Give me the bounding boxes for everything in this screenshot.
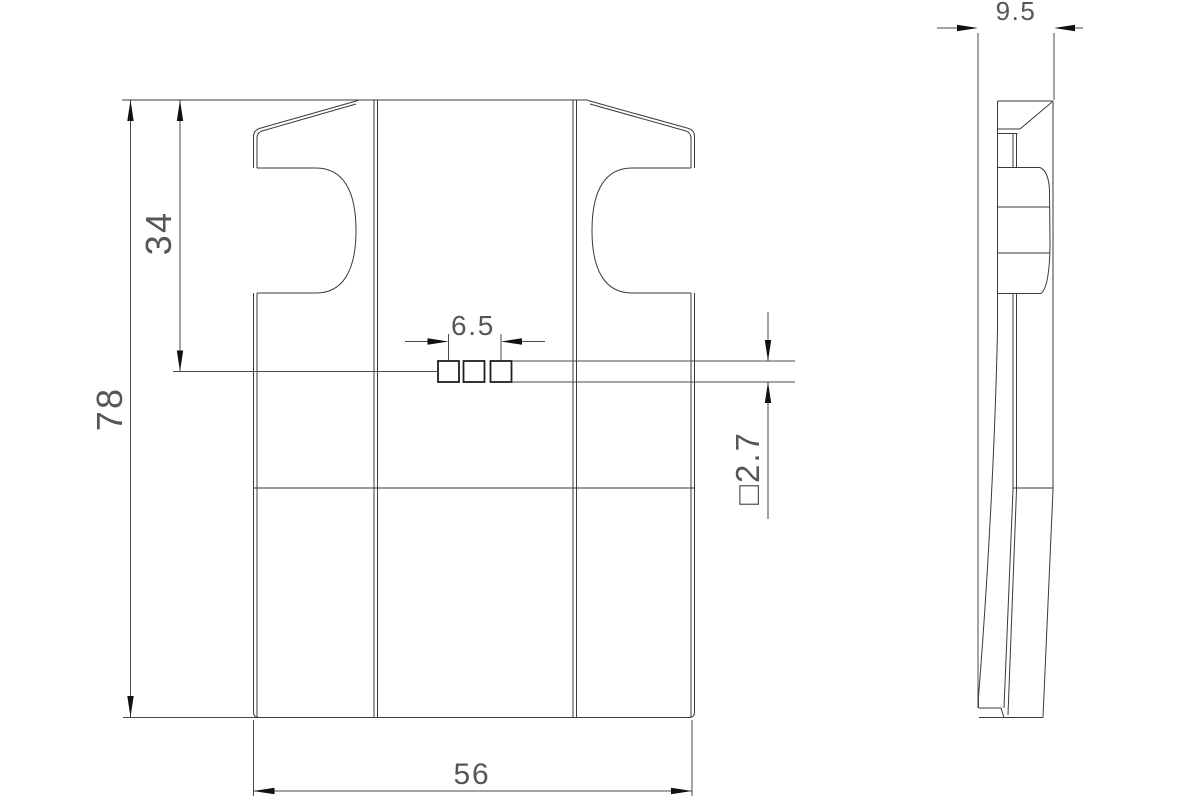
front-left-notch bbox=[257, 168, 356, 293]
dim-95-arrow-right bbox=[1054, 25, 1075, 31]
side-tab-curve bbox=[1040, 168, 1050, 294]
dim-56-arrow-right bbox=[671, 788, 692, 794]
dim-label-overall-depth: 9.5 bbox=[996, 0, 1037, 26]
side-view bbox=[979, 101, 1054, 718]
dim-34-arrow-top bbox=[177, 100, 183, 121]
side-left-edge-bowed bbox=[979, 101, 998, 708]
front-right-notch bbox=[592, 168, 691, 293]
dimension-overall-depth: 9.5 bbox=[937, 0, 1083, 708]
square-slot-2 bbox=[464, 361, 485, 382]
drawing-canvas: 78 34 56 6.5 □2.7 bbox=[0, 0, 1200, 800]
front-left-shoulder-corner-inner bbox=[257, 131, 262, 138]
dim-27-arrow-down bbox=[765, 340, 771, 361]
dim-label-slot-spacing: 6.5 bbox=[451, 310, 495, 341]
side-foot-corner bbox=[1001, 708, 1004, 718]
technical-drawing: 78 34 56 6.5 □2.7 bbox=[0, 0, 1200, 800]
dim-27-arrow-up bbox=[765, 382, 771, 403]
square-slot-1 bbox=[438, 361, 459, 382]
front-right-shoulder-corner-inner bbox=[686, 131, 691, 138]
side-fold-lower-b bbox=[1008, 490, 1017, 715]
front-view bbox=[122, 100, 795, 718]
dim-34-arrow-bottom bbox=[177, 351, 183, 372]
dim-65-arrow-left bbox=[428, 338, 449, 344]
front-left-shoulder-outer bbox=[261, 101, 358, 129]
side-fold-lower-a bbox=[1004, 490, 1013, 708]
dim-label-overall-height: 78 bbox=[89, 387, 130, 431]
dim-56-arrow-left bbox=[254, 788, 275, 794]
dim-65-arrow-right bbox=[501, 338, 522, 344]
front-right-shoulder-outer bbox=[588, 101, 687, 129]
dimension-overall-width: 56 bbox=[254, 720, 693, 796]
dimension-slot-size: □2.7 bbox=[729, 312, 771, 519]
dim-label-upper-section: 34 bbox=[138, 211, 179, 255]
front-right-edge-lower-outer bbox=[689, 293, 695, 718]
side-right-edge-taper bbox=[1043, 490, 1053, 718]
dimension-overall-height: 78 bbox=[89, 100, 256, 718]
dim-78-arrow-top bbox=[127, 100, 133, 121]
square-slot-3 bbox=[491, 361, 512, 382]
front-left-edge-lower-outer bbox=[254, 293, 260, 718]
dim-95-arrow-left bbox=[957, 25, 978, 31]
front-right-shoulder-inner bbox=[590, 104, 686, 131]
dimension-slot-spacing: 6.5 bbox=[405, 310, 545, 361]
dim-label-slot-size: □2.7 bbox=[729, 431, 766, 505]
front-left-shoulder-inner bbox=[262, 104, 356, 131]
side-top-chamfer bbox=[1020, 102, 1052, 129]
dim-78-arrow-bottom bbox=[127, 696, 133, 717]
dimension-upper-section: 34 bbox=[138, 100, 183, 372]
dim-label-overall-width: 56 bbox=[454, 758, 491, 791]
